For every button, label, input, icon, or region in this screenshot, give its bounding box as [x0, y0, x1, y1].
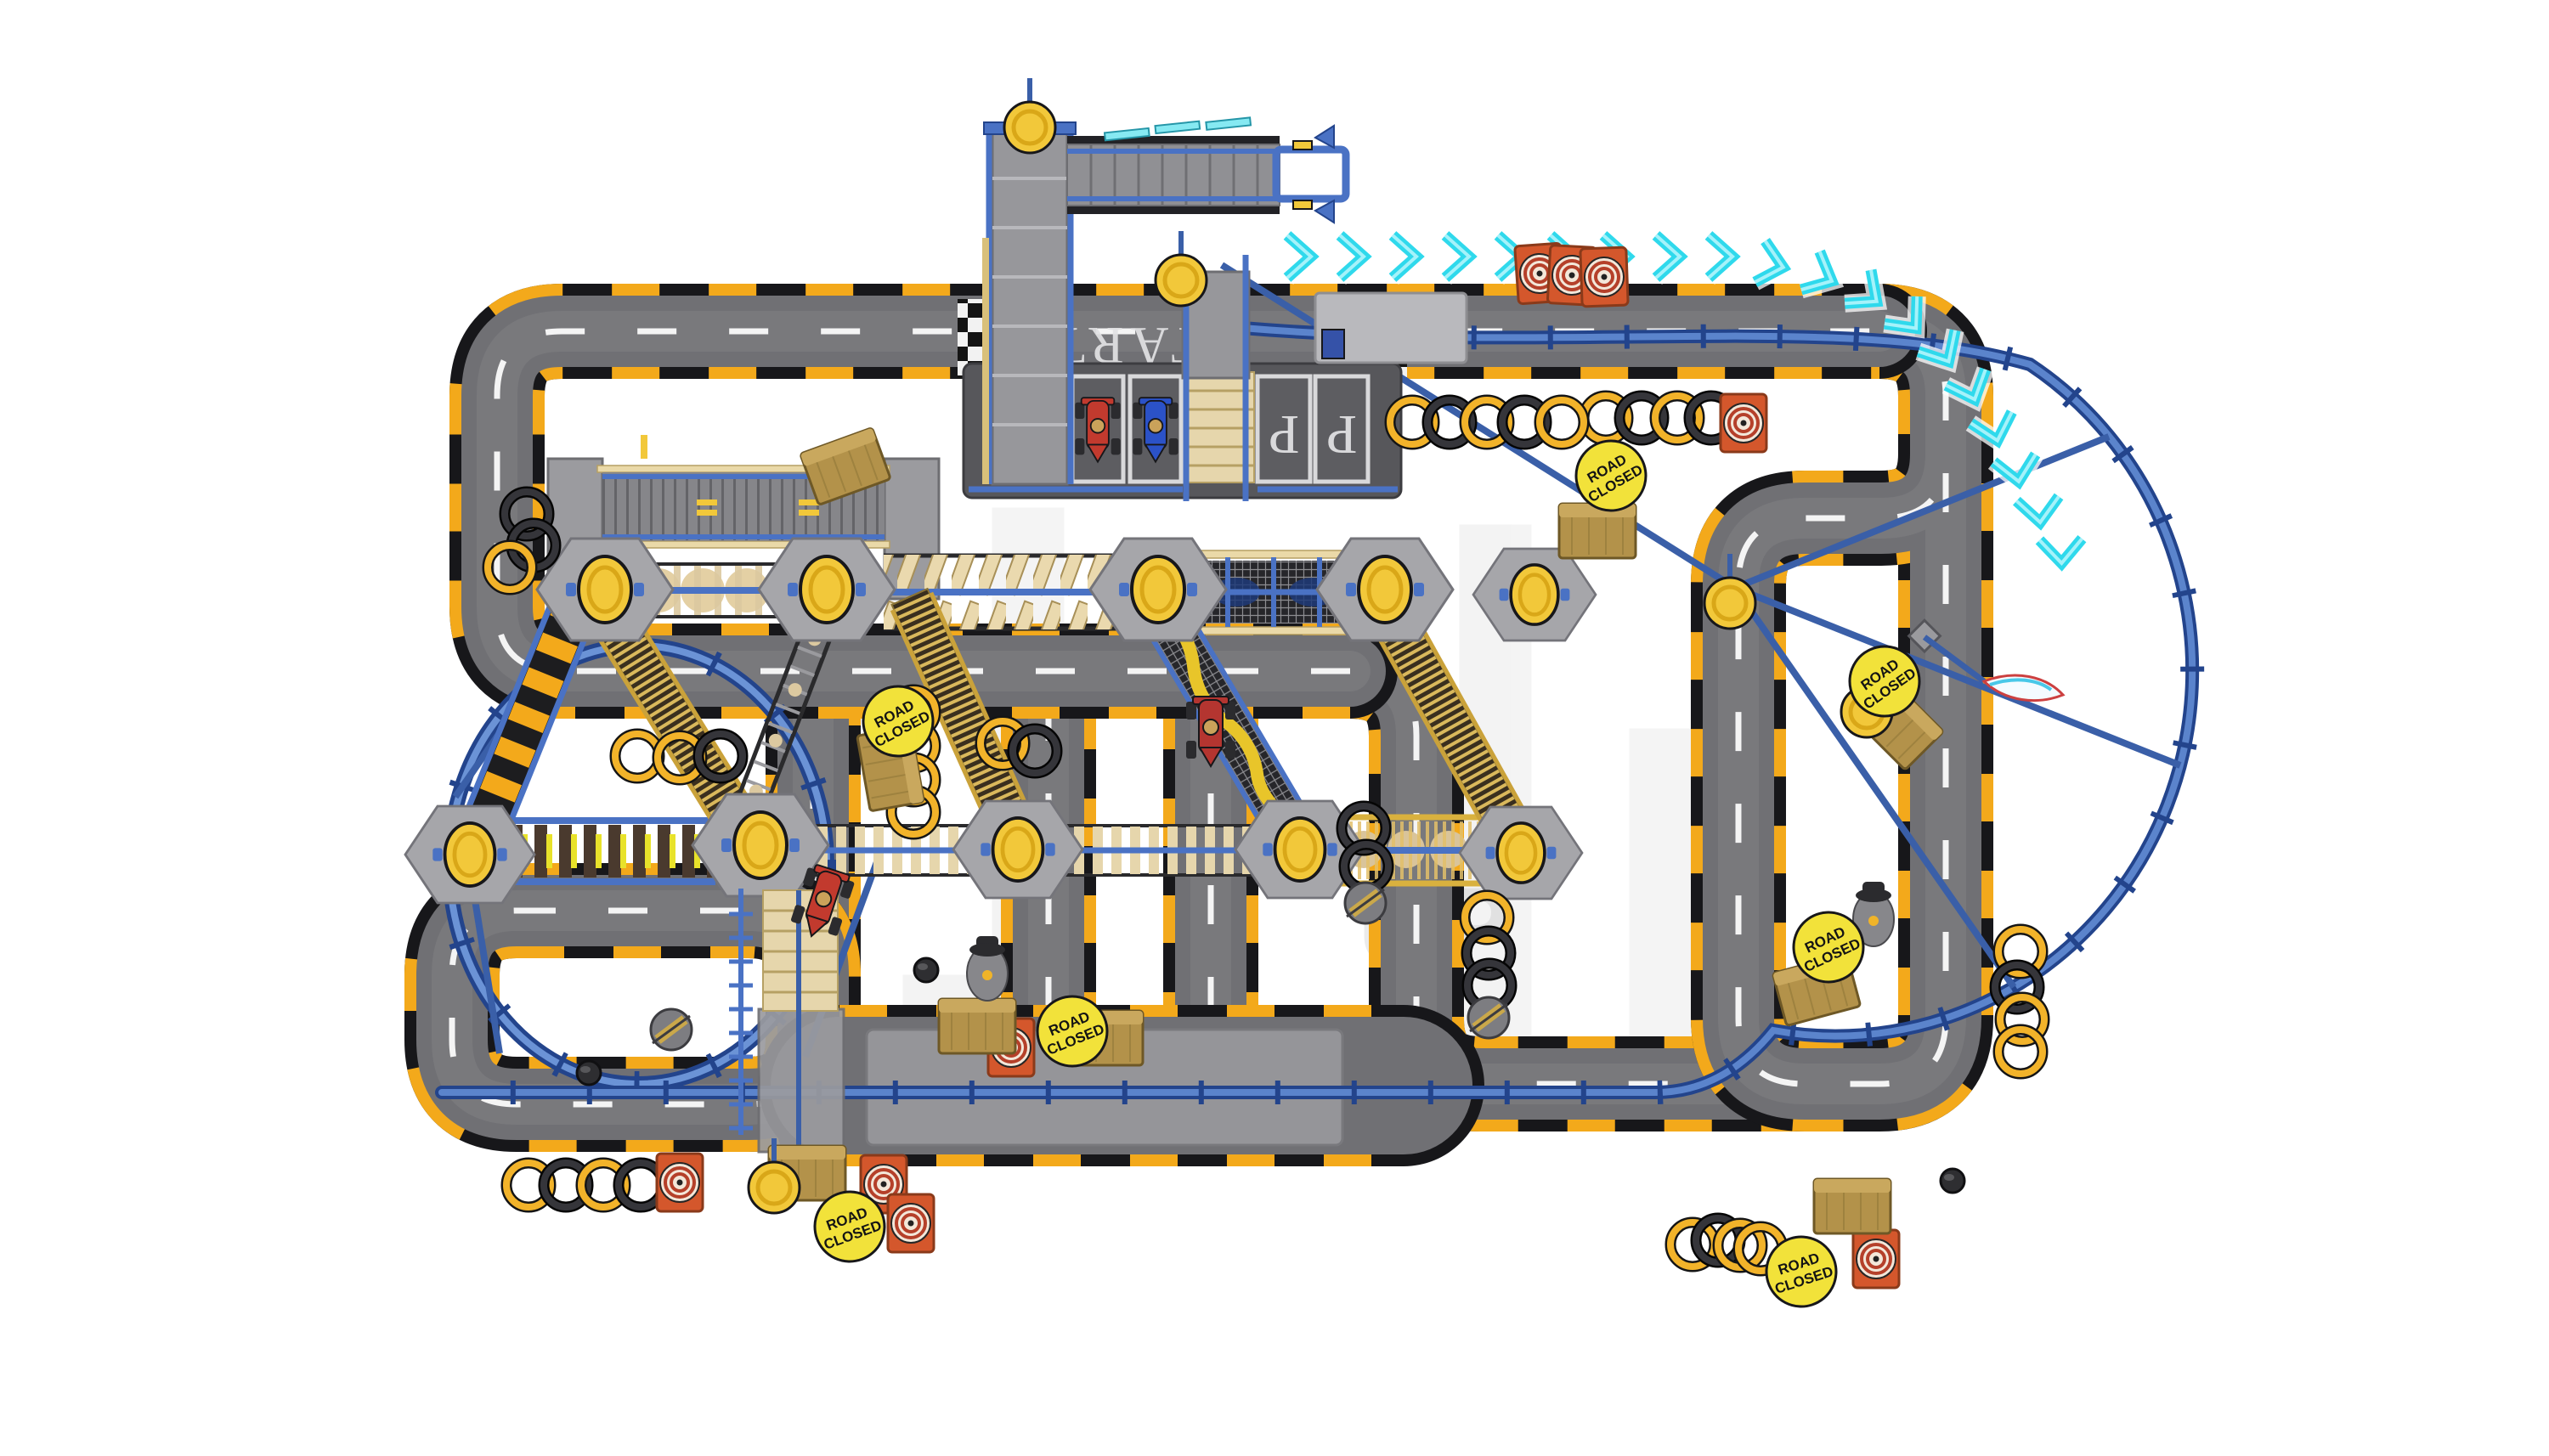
target-box	[1853, 1230, 1899, 1288]
round-bumper	[577, 1061, 601, 1085]
target-box	[888, 1194, 934, 1252]
striped-disc	[1345, 883, 1386, 923]
hat-figure	[967, 936, 1008, 1001]
crate	[1559, 504, 1636, 558]
target-box	[657, 1154, 703, 1211]
parking-letter: P	[1326, 404, 1358, 466]
striped-disc	[1468, 997, 1509, 1038]
track-canvas: UP START	[0, 0, 2549, 1456]
target-box	[1580, 247, 1628, 307]
road-closed-sign: ROAD CLOSED	[1757, 1227, 1845, 1315]
top-launch-bridge	[1067, 116, 1346, 223]
piston-bridge	[508, 821, 715, 882]
round-bumper	[1941, 1169, 1964, 1193]
target-box	[1721, 394, 1766, 452]
crate	[1814, 1179, 1891, 1233]
launcher	[1276, 126, 1346, 223]
screenshot-root: UP START	[0, 0, 2549, 1456]
striped-disc	[651, 1009, 692, 1050]
elevator-tower	[982, 78, 1076, 484]
round-bumper	[914, 958, 938, 982]
tower-top-knob	[1156, 231, 1207, 306]
tower-top-knob	[1004, 78, 1055, 153]
station-box	[1315, 293, 1467, 363]
crate	[939, 999, 1015, 1053]
parking-letter: P	[1269, 404, 1300, 466]
rail-cart	[1322, 330, 1344, 358]
